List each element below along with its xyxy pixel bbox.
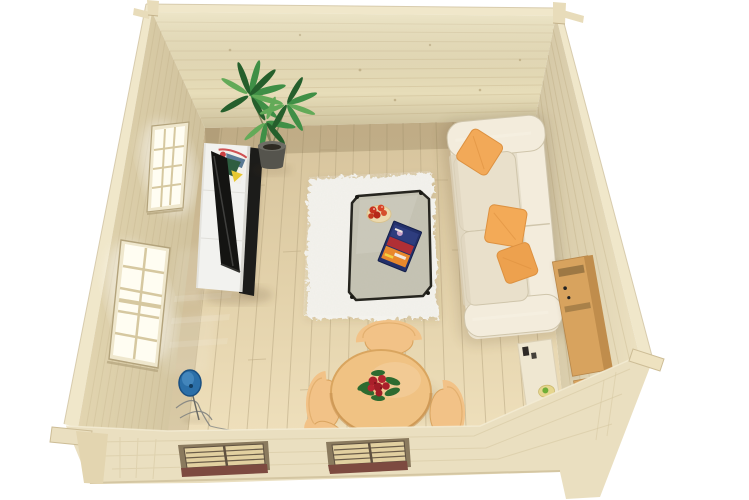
cabin-scene <box>0 0 749 500</box>
front-window-left <box>178 441 270 477</box>
back-wall <box>152 12 556 128</box>
coffee-table <box>349 191 431 300</box>
cabin-render <box>0 0 749 500</box>
sofa <box>440 111 569 346</box>
pillow <box>484 204 528 248</box>
front-window-right <box>326 438 411 474</box>
